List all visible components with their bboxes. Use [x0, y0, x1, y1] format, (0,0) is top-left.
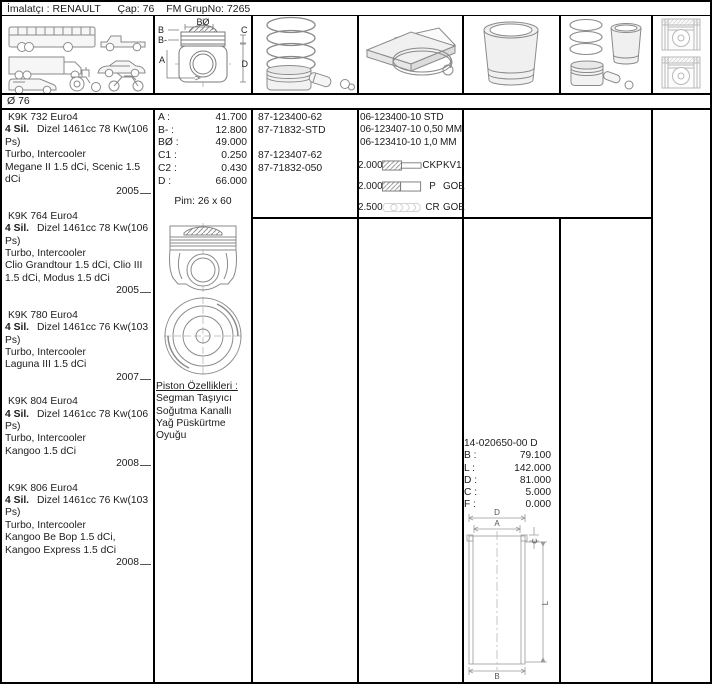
svg-text:A: A	[159, 55, 165, 65]
engine-code: K9K 806 Euro4	[5, 483, 152, 495]
engine-models: Kangoo Be Bop 1.5 dCi, Kangoo Express 1.…	[5, 532, 152, 557]
engine-code: K9K 732 Euro4	[5, 112, 152, 124]
svg-text:L: L	[541, 600, 550, 605]
pin-size: Pim: 26 x 60	[156, 196, 250, 207]
divider	[651, 110, 653, 682]
dimension-value: 49.000	[216, 137, 248, 150]
ring-type: CR	[422, 202, 443, 213]
catalog-page: İmalatçı : RENAULT Çap: 76 FM GrupNo: 72…	[0, 0, 712, 684]
dimension-value: 0.430	[221, 163, 247, 176]
product-image-row: BØ B B- C A D	[2, 16, 710, 95]
liner-dimension-label: B :	[464, 450, 476, 462]
engine-spec: 4 Sil.Dizel 1461cc 76 Kw(103 Ps)	[5, 322, 152, 347]
engine-code: K9K 764 Euro4	[5, 211, 152, 223]
piston-part-number: 87-71832-050	[256, 163, 355, 176]
dimension-label: BØ :	[158, 137, 179, 150]
ring-set-icon	[253, 16, 357, 93]
engine-cylinders: 4 Sil.	[5, 223, 29, 234]
bore-label: Çap:	[118, 3, 140, 15]
piston-feature-line: Segman Taşıyıcı	[156, 393, 252, 405]
engine-block: K9K 780 Euro4 4 Sil.Dizel 1461cc 76 Kw(1…	[5, 310, 152, 384]
manufacturer-value: RENAULT	[53, 3, 101, 15]
divider	[559, 217, 561, 682]
engine-cylinders: 4 Sil.	[5, 495, 29, 506]
engine-spec: 4 Sil.Dizel 1461cc 78 Kw(106 Ps)	[5, 223, 152, 248]
divider	[153, 110, 155, 682]
liner-dimension-drawing: D A C L B	[463, 508, 553, 680]
liner-dimension-rows: B : 79.100 L : 142.000 D : 81.000 C	[464, 450, 551, 511]
svg-text:A: A	[494, 519, 500, 528]
engine-aspiration: Turbo, Intercooler	[5, 149, 152, 161]
engine-aspiration: Turbo, Intercooler	[5, 347, 152, 359]
engine-code: K9K 804 Euro4	[5, 396, 152, 408]
table-body: K9K 732 Euro4 4 Sil.Dizel 1461cc 78 Kw(1…	[2, 110, 710, 682]
dimension-row: C1 : 0.250	[156, 150, 250, 163]
liner-dimension-label: C :	[464, 487, 477, 499]
piston-part-number: 87-123407-62	[256, 150, 355, 163]
dimension-row: A : 41.700	[156, 112, 250, 125]
engine-models: Laguna III 1.5 dCi	[5, 359, 152, 371]
piston-in-cylinder-icon	[653, 16, 710, 93]
bore-diameter-text: Ø 76	[7, 95, 30, 107]
engine-spec: 4 Sil.Dizel 1461cc 76 Kw(103 Ps)	[5, 495, 152, 520]
ring-profile-icon	[382, 201, 422, 214]
dimension-value: 66.000	[216, 176, 248, 189]
dimension-value: 0.250	[221, 150, 247, 163]
dimension-row: C2 : 0.430	[156, 163, 250, 176]
piston-feature-line: Yağ Püskürtme	[156, 418, 252, 430]
engine-year: 2008	[5, 458, 152, 470]
liner-dimension-row: D : 81.000	[464, 475, 551, 487]
ring-set-number: 06-123410-10 1,0 MM	[360, 137, 461, 149]
ring-spec-list: 2.000	[358, 159, 461, 222]
ring-set-number: 06-123407-10 0,50 MM	[360, 124, 461, 136]
engine-list: K9K 732 Euro4 4 Sil.Dizel 1461cc 78 Kw(1…	[5, 112, 152, 581]
svg-text:B-: B-	[158, 35, 167, 45]
ring-type: CKP	[422, 160, 443, 171]
liner-dimension-value: 142.000	[514, 463, 551, 475]
group-label: FM GrupNo:	[166, 3, 224, 15]
dimension-label: B- :	[158, 125, 174, 138]
dimension-row: D : 66.000	[156, 176, 250, 189]
liner-part-number: 14-020650-00 D	[464, 438, 551, 450]
cylinder-liner-icon	[464, 16, 559, 93]
svg-text:C: C	[241, 25, 248, 35]
engine-cylinders: 4 Sil.	[5, 409, 29, 420]
piston-part-number: 87-123400-62	[256, 112, 355, 125]
engine-spec: 4 Sil.Dizel 1461cc 78 Kw(106 Ps)	[5, 124, 152, 149]
ring-profile-icon	[382, 159, 422, 172]
ring-size: 2.000	[358, 181, 382, 192]
engine-year: 2008	[5, 557, 152, 569]
piston-features: Piston Özellikleri : Segman TaşıyıcıSoğu…	[156, 381, 252, 442]
engine-block: K9K 732 Euro4 4 Sil.Dizel 1461cc 78 Kw(1…	[5, 112, 152, 199]
engine-spec: 4 Sil.Dizel 1461cc 78 Kw(106 Ps)	[5, 409, 152, 434]
engine-block: K9K 764 Euro4 4 Sil.Dizel 1461cc 78 Kw(1…	[5, 211, 152, 298]
svg-text:D: D	[242, 59, 249, 69]
dimension-label: A :	[158, 112, 170, 125]
ring-spec-row: 2.500	[358, 201, 461, 214]
piston-top-view-drawing	[158, 296, 248, 376]
piston-part-number: 87-71832-STD	[256, 125, 355, 138]
dimension-value: 12.800	[216, 125, 248, 138]
engine-aspiration: Turbo, Intercooler	[5, 520, 152, 532]
vehicle-types-icon	[2, 16, 153, 93]
piston-part-number	[256, 137, 355, 150]
ring-size: 2.500	[358, 202, 382, 213]
ring-profile-icon	[382, 180, 422, 193]
header-bar: İmalatçı : RENAULT Çap: 76 FM GrupNo: 72…	[2, 2, 710, 17]
piston-dimensions-icon: BØ B B- C A D	[155, 16, 251, 93]
engine-block: K9K 806 Euro4 4 Sil.Dizel 1461cc 76 Kw(1…	[5, 483, 152, 570]
piston-feature-line: Soğutma Kanallı	[156, 406, 252, 418]
dimension-row: B- : 12.800	[156, 125, 250, 138]
engine-year: 2005	[5, 186, 152, 198]
liner-dimension-label: L :	[464, 463, 475, 475]
liner-dimension-label: D :	[464, 475, 477, 487]
engine-block: K9K 804 Euro4 4 Sil.Dizel 1461cc 78 Kw(1…	[5, 396, 152, 470]
engine-models: Kangoo 1.5 dCi	[5, 446, 152, 458]
engine-code: K9K 780 Euro4	[5, 310, 152, 322]
ring-set-numbers: 06-123400-10 STD06-123407-10 0,50 MM06-1…	[360, 112, 461, 149]
dimension-label: D :	[158, 176, 171, 189]
liner-dimension-row: L : 142.000	[464, 463, 551, 475]
engine-models: Megane II 1.5 dCi, Scenic 1.5 dCi	[5, 162, 152, 187]
piston-part-numbers: 87-123400-6287-71832-STD87-123407-6287-7…	[256, 112, 355, 175]
dimension-list: A : 41.700 B- : 12.800 BØ : 49.000 C1 : …	[156, 112, 250, 188]
piston-liner-kit-icon	[561, 16, 651, 93]
engine-year: 2007	[5, 372, 152, 384]
svg-text:BØ: BØ	[196, 17, 209, 27]
piston-features-title: Piston Özellikleri :	[156, 381, 252, 393]
liner-dimension-value: 81.000	[520, 475, 551, 487]
engine-aspiration: Turbo, Intercooler	[5, 248, 152, 260]
engine-cylinders: 4 Sil.	[5, 322, 29, 333]
ring-size: 2.000	[358, 160, 382, 171]
bore-value: 76	[143, 3, 155, 15]
svg-text:D: D	[494, 508, 500, 517]
svg-text:B: B	[494, 672, 499, 680]
svg-text:B: B	[158, 25, 164, 35]
dimension-label: C1 :	[158, 150, 177, 163]
ring-brand: KV1	[443, 160, 461, 171]
liner-dimension-value: 79.100	[520, 450, 551, 462]
liner-data: 14-020650-00 D B : 79.100 L : 142.000 D …	[464, 438, 551, 512]
engine-cylinders: 4 Sil.	[5, 124, 29, 135]
dimension-value: 41.700	[216, 112, 248, 125]
svg-text:C: C	[530, 538, 539, 544]
manufacturer-label: İmalatçı :	[7, 3, 50, 15]
engine-aspiration: Turbo, Intercooler	[5, 433, 152, 445]
liner-dimension-row: C : 5.000	[464, 487, 551, 499]
bore-row: Ø 76	[2, 95, 710, 110]
ring-spec-row: 2.000	[358, 180, 461, 193]
ring-set-number: 06-123400-10 STD	[360, 112, 461, 124]
ring-spec-row: 2.000	[358, 159, 461, 172]
ring-type: P	[422, 181, 443, 192]
piston-features-lines: Segman TaşıyıcıSoğutma KanallıYağ Püskür…	[156, 393, 252, 442]
piston-side-view-drawing	[158, 223, 248, 295]
engine-models: Clio Grandtour 1.5 dCi, Clio III 1.5 dCi…	[5, 260, 152, 285]
group-value: 7265	[227, 3, 250, 15]
piston-feature-line: Oyuğu	[156, 430, 252, 442]
dimension-label: C2 :	[158, 163, 177, 176]
ring-packaging-icon	[359, 16, 462, 93]
liner-dimension-row: B : 79.100	[464, 450, 551, 462]
ring-brand: GOE	[443, 181, 461, 192]
liner-dimension-value: 5.000	[526, 487, 552, 499]
engine-year: 2005	[5, 285, 152, 297]
ring-brand: GOE	[443, 202, 461, 213]
dimension-row: BØ : 49.000	[156, 137, 250, 150]
